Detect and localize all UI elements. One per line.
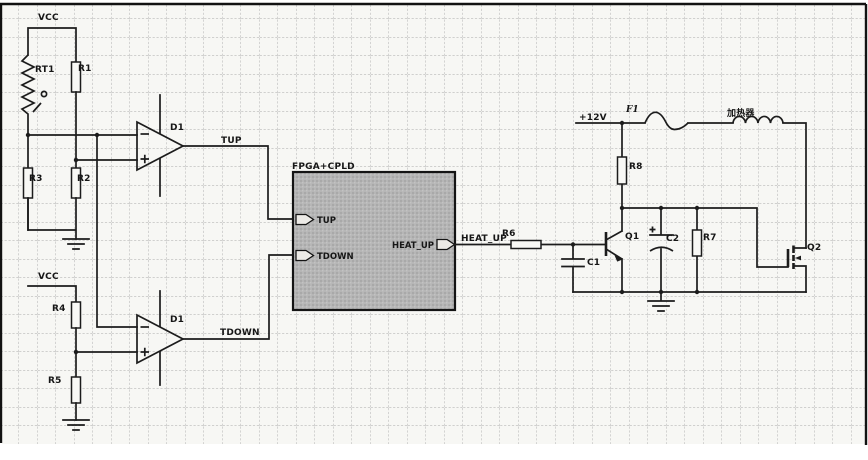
junction-dot — [620, 290, 624, 294]
c2-label: C2 — [666, 234, 679, 244]
junction-dot — [95, 133, 99, 137]
heater-label: 加热器 — [726, 107, 755, 119]
junction-dot — [571, 242, 575, 246]
fpga-pin-tdown-label: TDOWN — [317, 252, 354, 262]
r8-label: R8 — [629, 162, 643, 172]
resistor-r5 — [72, 377, 81, 403]
r7-label: R7 — [703, 233, 717, 243]
junction-dot — [74, 158, 78, 162]
q2-label: Q2 — [807, 243, 821, 253]
r5-label: R5 — [48, 376, 62, 386]
resistor-r8 — [618, 157, 627, 184]
rt1-label: RT1 — [35, 65, 55, 75]
fpga-cpld-block: FPGA+CPLD TUP TDOWN HEAT_UP — [292, 162, 455, 310]
f1-label: F1 — [625, 105, 639, 115]
r1-label: R1 — [78, 64, 92, 74]
resistor-r4 — [72, 302, 81, 328]
junction-dot — [26, 133, 30, 137]
r6-label: R6 — [502, 229, 516, 239]
fpga-pin-tup-label: TUP — [317, 216, 336, 226]
resistor-r7 — [693, 230, 702, 256]
tup-net-label: TUP — [221, 136, 242, 146]
fpga-pin-heatup-label: HEAT_UP — [392, 241, 434, 251]
schematic-canvas: VCC RT1 R1 R3 R2 VCC R4 R5 — [0, 0, 868, 460]
c1-label: C1 — [587, 258, 600, 268]
junction-dot — [620, 206, 624, 210]
resistor-r6 — [511, 241, 541, 249]
fpga-title: FPGA+CPLD — [292, 162, 355, 172]
schematic-page: VCC RT1 R1 R3 R2 VCC R4 R5 — [0, 0, 868, 460]
heatup-net-label: HEAT_UP — [461, 234, 507, 244]
r4-label: R4 — [52, 304, 66, 314]
junction-dot — [695, 290, 699, 294]
r3-label: R3 — [29, 174, 43, 184]
junction-dot — [620, 121, 624, 125]
d1-top-label: D1 — [170, 123, 184, 133]
r2-label: R2 — [77, 174, 91, 184]
vcc-label-bottom: VCC — [38, 272, 59, 282]
plus12v-label: +12V — [579, 113, 607, 123]
junction-dot — [74, 350, 78, 354]
q1-label: Q1 — [625, 232, 639, 242]
d1-bottom-label: D1 — [170, 315, 184, 325]
tdown-net-label: TDOWN — [220, 328, 260, 338]
vcc-label-top: VCC — [38, 13, 59, 23]
